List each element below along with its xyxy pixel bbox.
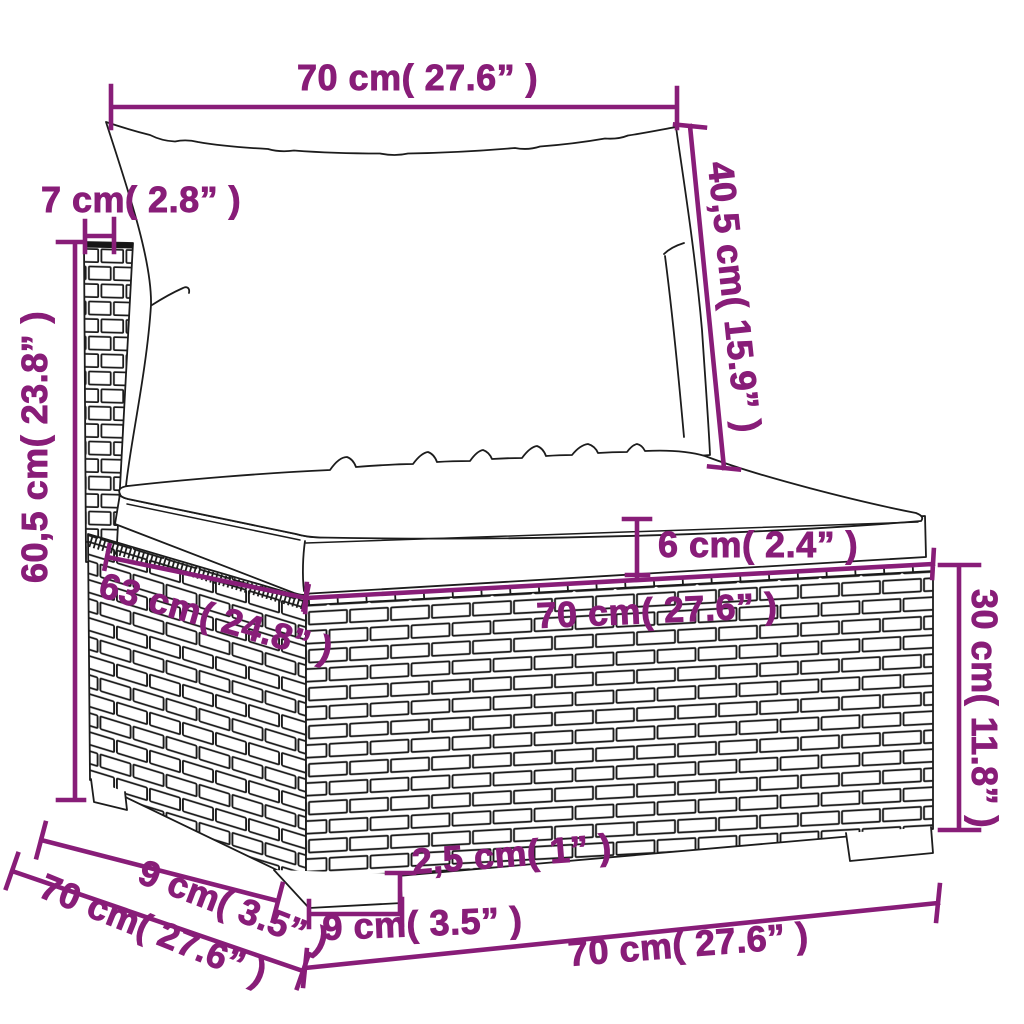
svg-text:70 cm( 27.6” ): 70 cm( 27.6” ) — [297, 57, 538, 98]
svg-text:9 cm( 3.5” ): 9 cm( 3.5” ) — [322, 899, 524, 948]
svg-text:30 cm( 11.8” ): 30 cm( 11.8” ) — [964, 589, 1005, 828]
svg-text:60,5 cm( 23.8” ): 60,5 cm( 23.8” ) — [14, 311, 55, 583]
svg-text:7 cm( 2.8” ): 7 cm( 2.8” ) — [41, 179, 241, 220]
svg-text:6 cm( 2.4” ): 6 cm( 2.4” ) — [658, 524, 858, 565]
